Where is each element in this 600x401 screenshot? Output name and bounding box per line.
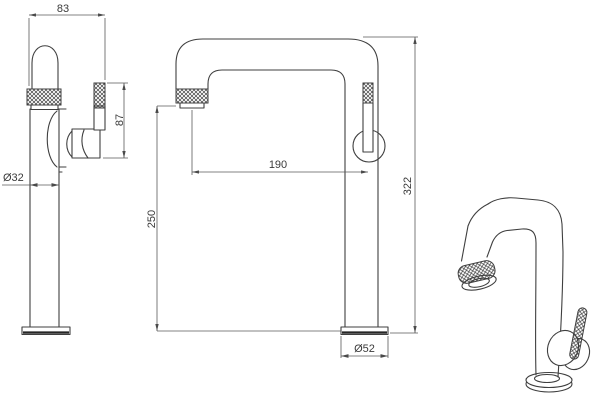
dimension-87: 87: [103, 83, 128, 158]
dimension-250: 250: [146, 106, 176, 331]
persp-spout-inner: [487, 229, 536, 257]
side-view: 83 87 Ø32: [2, 3, 128, 335]
dim-250-label: 250: [146, 210, 158, 228]
persp-spout-outer-left: [462, 204, 489, 261]
side-aerator-knurl: [27, 89, 61, 105]
front-view: 250 190 322 Ø52: [146, 37, 418, 358]
dim-d32-label: Ø32: [3, 172, 24, 184]
front-outline-inner: [208, 70, 345, 327]
front-aerator-cap: [180, 103, 204, 108]
dim-87-label: 87: [114, 114, 126, 126]
dimension-322: 322: [363, 37, 418, 333]
side-handle-knurl: [94, 83, 105, 108]
dim-190-label: 190: [269, 159, 287, 171]
front-aerator-knurl: [176, 89, 208, 103]
perspective-view: [457, 198, 595, 392]
dimension-83: 83: [29, 3, 105, 86]
dim-322-label: 322: [402, 177, 414, 195]
side-spout-tube: [32, 46, 58, 89]
side-valve-body: [47, 109, 66, 172]
persp-aerator-knurl: [457, 259, 497, 285]
persp-aerator: [457, 259, 499, 293]
front-handle-rod: [363, 103, 373, 152]
front-outline-outer: [176, 39, 378, 327]
dim-83-label: 83: [57, 3, 69, 15]
technical-drawing-canvas: 83 87 Ø32: [0, 0, 600, 401]
side-aerator-cap: [31, 105, 58, 110]
dim-d52-label: Ø52: [354, 343, 375, 355]
side-handle-rod: [94, 106, 105, 130]
side-pipe: [30, 109, 59, 327]
drawing-svg: 83 87 Ø32: [0, 0, 600, 401]
dimension-d52: Ø52: [341, 336, 388, 358]
dimension-190: 190: [192, 110, 368, 175]
side-cartridge: [72, 129, 100, 158]
front-handle-knurl: [363, 83, 373, 103]
